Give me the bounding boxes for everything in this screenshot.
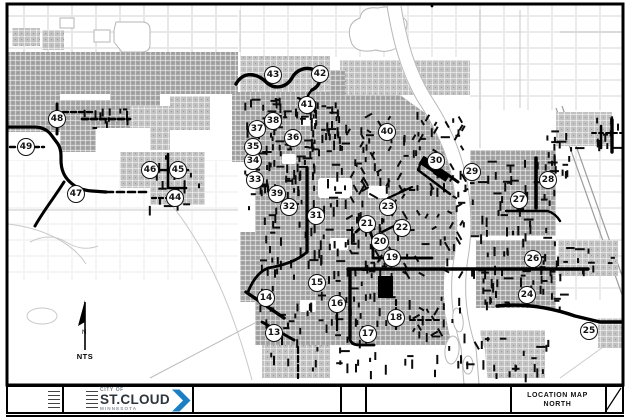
map-marker-26: 26 [524, 250, 542, 268]
location-map-line2: NORTH [510, 400, 605, 409]
titleblock-divider [365, 387, 367, 412]
map-marker-44: 44 [166, 189, 184, 207]
map-marker-33: 33 [246, 171, 264, 189]
titleblock-divider [62, 387, 64, 412]
map-marker-45: 45 [169, 161, 187, 179]
map-marker-24: 24 [518, 286, 536, 304]
map-marker-20: 20 [371, 233, 389, 251]
revision-lines [48, 391, 60, 409]
map-marker-18: 18 [387, 309, 405, 327]
north-letter: N [82, 330, 86, 336]
map-marker-19: 19 [383, 249, 401, 267]
map-marker-36: 36 [284, 129, 302, 147]
title-block: CITY OF ST.CLOUD MINNESOTA LOCATION MAP … [6, 385, 624, 414]
logo-name: ST.CLOUD [100, 393, 170, 407]
map-marker-38: 38 [264, 112, 282, 130]
map-marker-21: 21 [358, 215, 376, 233]
revision-lines [86, 391, 98, 409]
map-marker-47: 47 [67, 185, 85, 203]
map-marker-27: 27 [510, 191, 528, 209]
map-marker-16: 16 [328, 295, 346, 313]
map-marker-23: 23 [379, 198, 397, 216]
map-marker-13: 13 [265, 324, 283, 342]
map-marker-17: 17 [359, 325, 377, 343]
north-arrow: N NTS [77, 300, 94, 361]
titleblock-divider [340, 387, 342, 412]
map-marker-42: 42 [311, 65, 329, 83]
map-marker-35: 35 [244, 138, 262, 156]
map-marker-46: 46 [141, 161, 159, 179]
map-marker-49: 49 [17, 138, 35, 156]
map-marker-15: 15 [308, 274, 326, 292]
titleblock-divider [192, 387, 194, 412]
sheet-bottom-rule [6, 415, 624, 418]
logo-state: MINNESOTA [100, 407, 170, 412]
map-marker-43: 43 [264, 66, 282, 84]
location-map-sheet: N NTS 1314151617181920212223242526272829… [0, 0, 630, 419]
nts-label: NTS [77, 352, 94, 361]
map-marker-48: 48 [48, 110, 66, 128]
map-marker-41: 41 [298, 96, 316, 114]
map-marker-30: 30 [427, 152, 445, 170]
map-artwork: N NTS [7, 5, 630, 384]
map-marker-31: 31 [307, 207, 325, 225]
map-marker-22: 22 [393, 219, 411, 237]
map-marker-25: 25 [580, 322, 598, 340]
map-marker-29: 29 [463, 163, 481, 181]
map-marker-39: 39 [268, 185, 286, 203]
logo-chevron-icon [171, 389, 191, 412]
city-logo: CITY OF ST.CLOUD MINNESOTA [100, 388, 170, 412]
location-map-line1: LOCATION MAP [510, 391, 605, 400]
map-marker-28: 28 [539, 171, 557, 189]
diagonal-cell [605, 387, 622, 412]
map-marker-40: 40 [378, 123, 396, 141]
map-marker-14: 14 [257, 289, 275, 307]
location-map-label: LOCATION MAP NORTH [510, 391, 605, 409]
